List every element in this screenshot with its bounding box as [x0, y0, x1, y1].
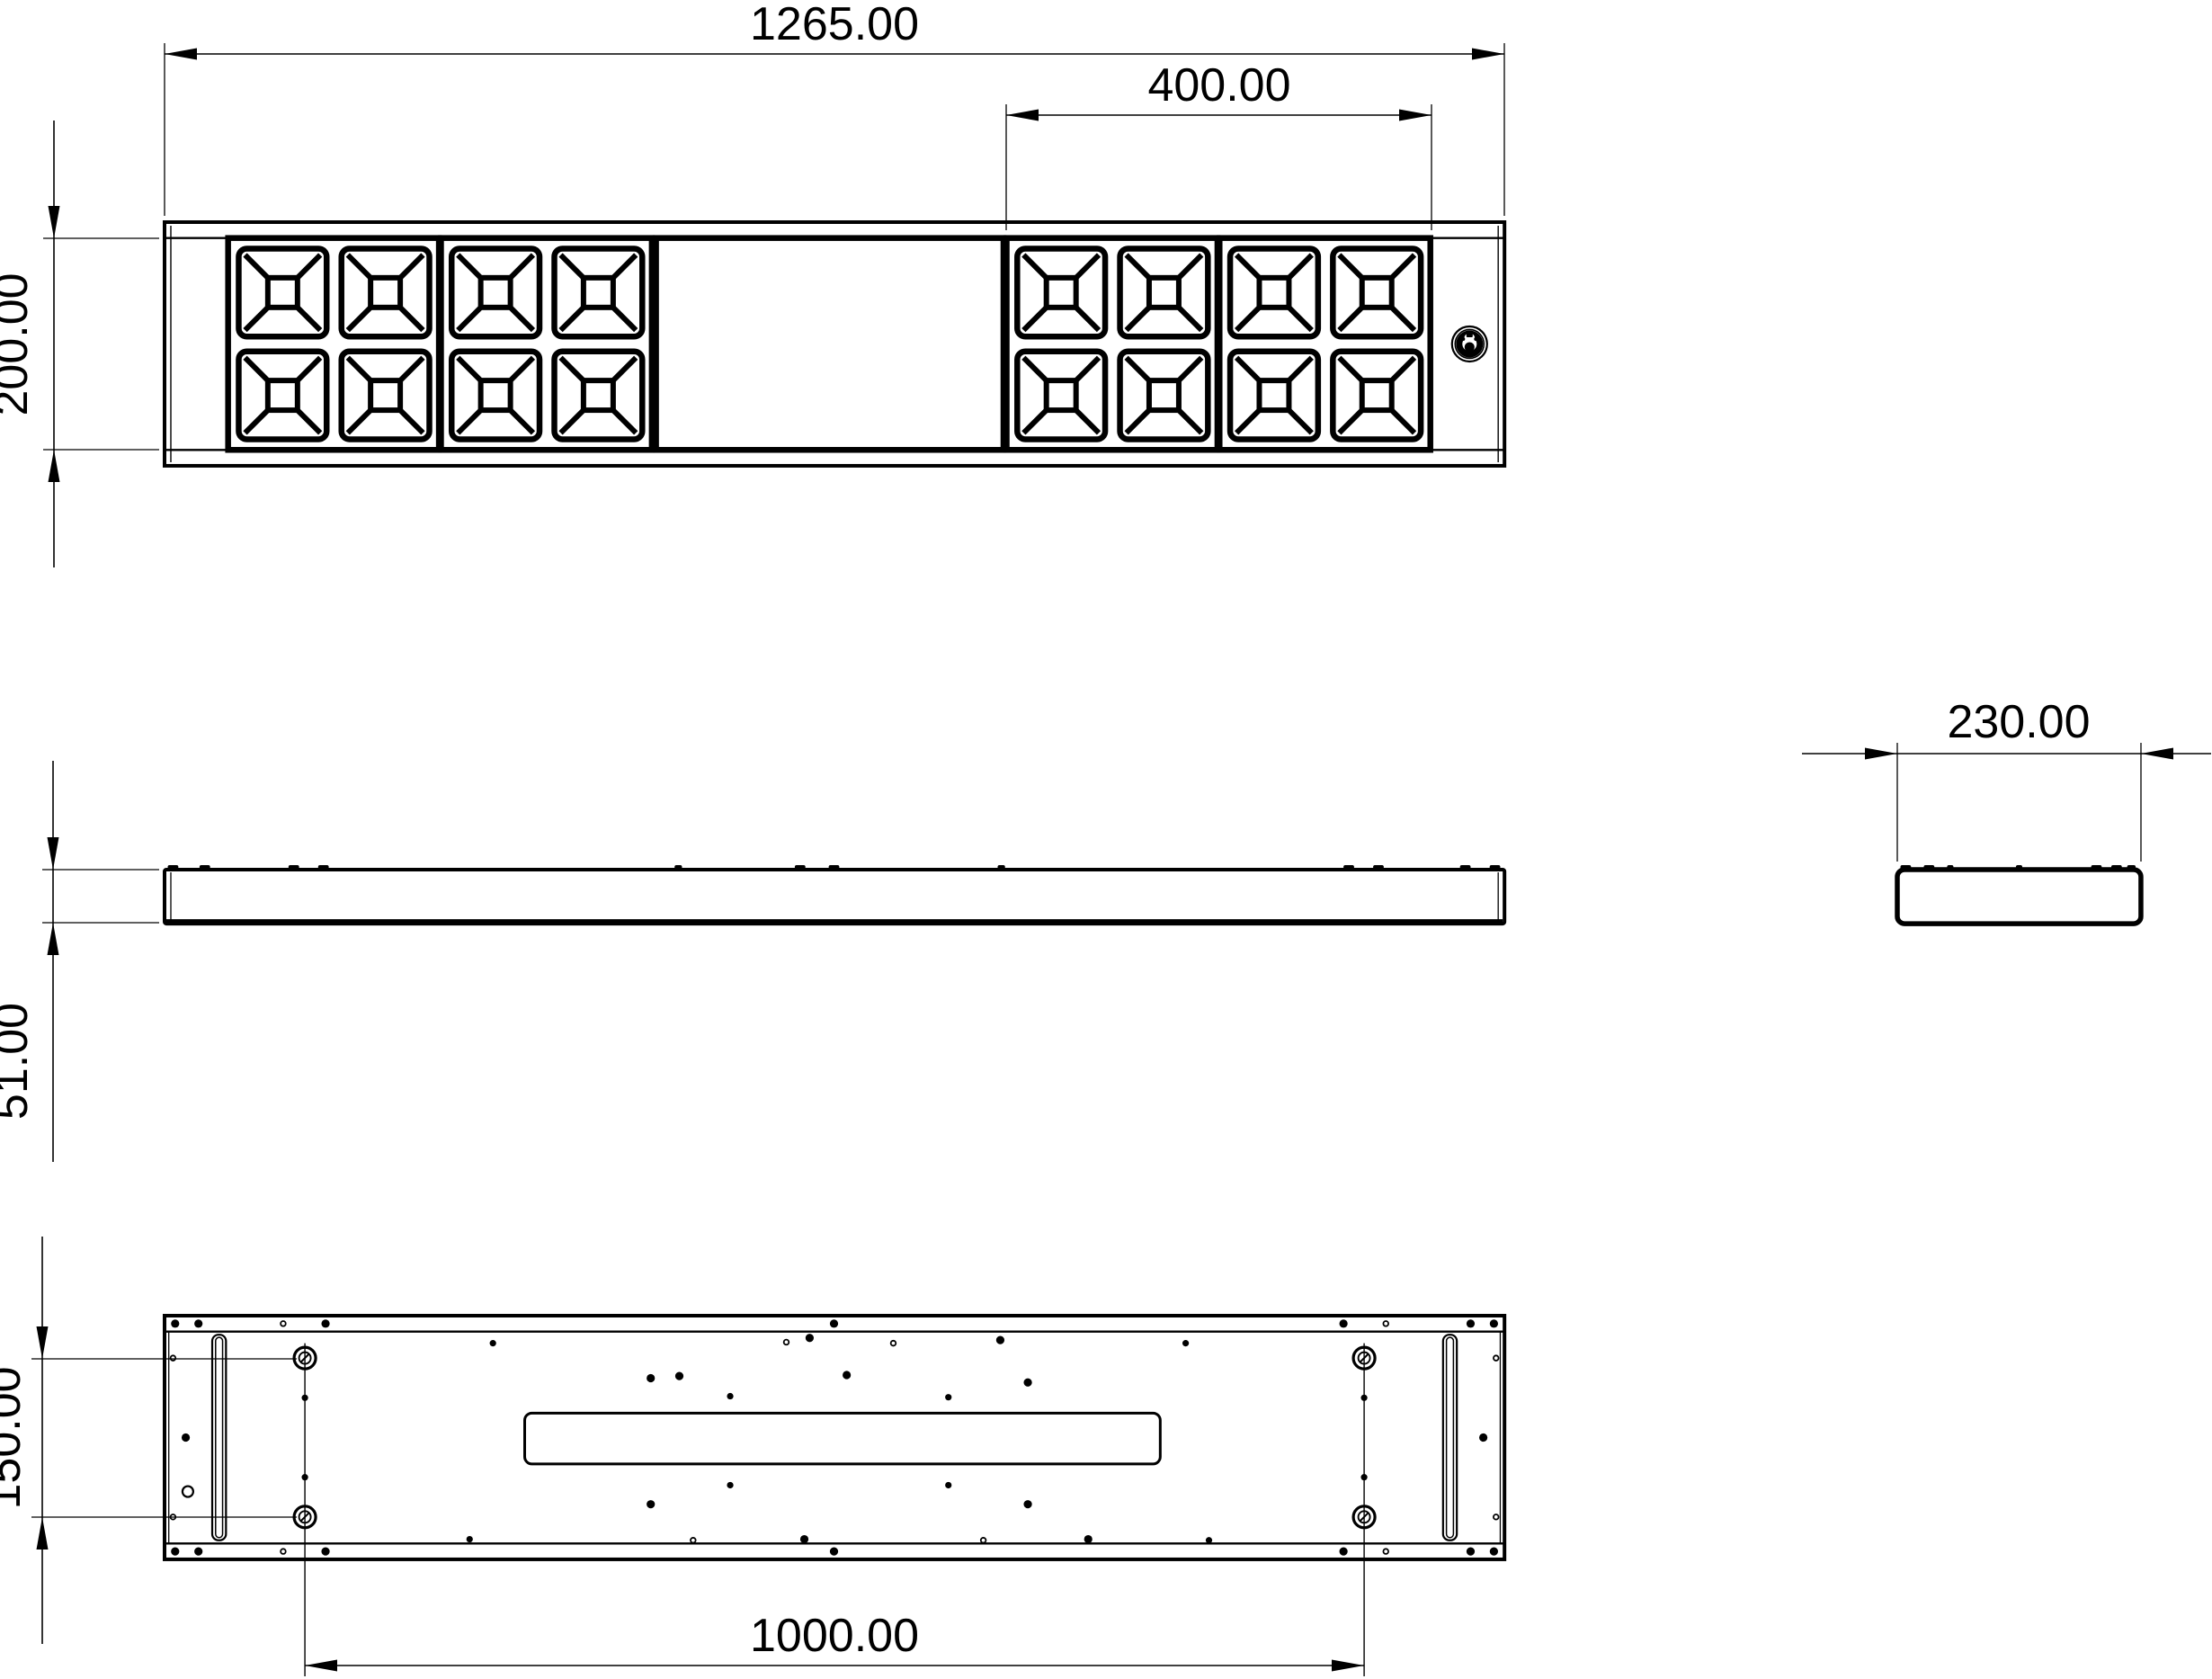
rivet [321, 1548, 329, 1556]
dimension-arrowhead [1332, 1660, 1364, 1672]
rivet [301, 1474, 308, 1480]
dimension-arrowhead [49, 206, 60, 238]
profile-outline [165, 870, 1504, 924]
mounting-clip [1460, 865, 1471, 871]
cable-entry-hole [183, 1487, 193, 1497]
end-view [1897, 865, 2141, 924]
pilot-hole [1494, 1355, 1499, 1361]
dim-end-cap-width-label: 230.00 [1947, 696, 2090, 748]
pilot-hole [281, 1549, 286, 1554]
dim-face-width-label: 200.00 [0, 272, 38, 415]
dim-overall-length-label: 1265.00 [750, 0, 919, 50]
dimension-arrowhead [1472, 49, 1504, 60]
rivet [1479, 1433, 1487, 1442]
pilot-hole [1494, 1514, 1499, 1520]
rivet [1340, 1548, 1348, 1556]
front-view [165, 222, 1504, 466]
mounting-clip [795, 865, 806, 871]
housing-outline [165, 222, 1504, 466]
rivet [1360, 1474, 1367, 1480]
rivet [727, 1393, 733, 1399]
mounting-clip [1343, 865, 1354, 871]
rivet [1490, 1548, 1498, 1556]
rivet [675, 1372, 683, 1380]
mounting-clip [289, 865, 299, 871]
rivet [996, 1335, 1004, 1344]
dim-module-group-width-label: 400.00 [1147, 59, 1290, 112]
rivet [171, 1548, 179, 1556]
rivet [830, 1548, 838, 1556]
mounting-clip [200, 865, 210, 871]
mounting-clip [168, 865, 179, 871]
dim-hole-col-spacing-label: 1000.00 [750, 1610, 919, 1662]
mounting-clip [2092, 865, 2102, 871]
mounting-clip [1923, 865, 1934, 871]
rivet [1023, 1379, 1031, 1387]
end-cap-seam [1443, 1335, 1457, 1541]
rivet [1084, 1535, 1093, 1543]
rivet [1467, 1319, 1475, 1327]
mounting-clip [2127, 865, 2136, 871]
blank-panel [656, 238, 1003, 451]
mounting-clip [318, 865, 329, 871]
rivet [194, 1548, 202, 1556]
pilot-hole [1383, 1321, 1388, 1326]
dimension-arrowhead [305, 1660, 337, 1672]
dimension-arrowhead [37, 1326, 49, 1359]
rivet [490, 1340, 496, 1346]
dimension-arrowhead [2141, 748, 2173, 760]
dimension-arrowhead [1399, 110, 1432, 121]
mounting-clip [2111, 865, 2122, 871]
pilot-hole [784, 1340, 789, 1345]
rivet [1206, 1537, 1212, 1543]
dimension-arrowhead [1006, 110, 1039, 121]
pilot-hole [1383, 1549, 1388, 1554]
rivet [1023, 1500, 1031, 1508]
rivet [1340, 1319, 1348, 1327]
rivet [467, 1536, 473, 1542]
rivet [182, 1433, 190, 1442]
end-cap-seam [212, 1335, 226, 1541]
rivet [1182, 1340, 1189, 1346]
rivet [806, 1334, 814, 1342]
mounting-clip [829, 865, 840, 871]
rivet [800, 1535, 808, 1543]
dim-hole-row-spacing-label: 150.00 [0, 1366, 31, 1509]
mounting-clip [997, 865, 1004, 871]
rivet [321, 1319, 329, 1327]
rivet [647, 1374, 655, 1382]
mounting-clip [1373, 865, 1384, 871]
dimension-arrowhead [37, 1517, 49, 1550]
pilot-hole [981, 1538, 986, 1543]
rivet [647, 1500, 655, 1508]
pilot-hole [891, 1341, 896, 1346]
rivet [727, 1482, 733, 1488]
mounting-clip [1901, 865, 1912, 871]
technical-drawing-page: 1265.00 400.00 200.00 51.00 150.00 230.0… [0, 0, 2212, 1679]
pilot-hole [171, 1355, 176, 1361]
dim-profile-height-label: 51.00 [0, 1003, 38, 1120]
rivet [843, 1371, 851, 1379]
dimension-arrowhead [49, 450, 60, 482]
mounting-clip [674, 865, 682, 871]
mounting-clip [1490, 865, 1501, 871]
dimension-arrowhead [48, 837, 59, 870]
mounting-clip [2016, 865, 2022, 871]
dimension-arrowhead [165, 49, 197, 60]
mounting-clip [1947, 865, 1953, 871]
luminaire-three-view-drawing: 1265.00 400.00 200.00 51.00 150.00 230.0… [0, 0, 2212, 1679]
back-outline [165, 1316, 1504, 1559]
pilot-hole [281, 1321, 286, 1326]
pilot-hole [691, 1538, 696, 1543]
dimension-arrowhead [1865, 748, 1897, 760]
gear-tray-slot [525, 1413, 1161, 1464]
rivet [1467, 1548, 1475, 1556]
rivet [1490, 1319, 1498, 1327]
rivet [194, 1319, 202, 1327]
dimension-arrowhead [48, 923, 59, 955]
rivet [301, 1395, 308, 1401]
rivet [830, 1319, 838, 1327]
rivet [171, 1319, 179, 1327]
rivet [945, 1394, 951, 1400]
side-view [165, 865, 1504, 924]
end-cap-outline [1897, 870, 2141, 924]
rivet [1360, 1395, 1367, 1401]
rivet [945, 1482, 951, 1488]
